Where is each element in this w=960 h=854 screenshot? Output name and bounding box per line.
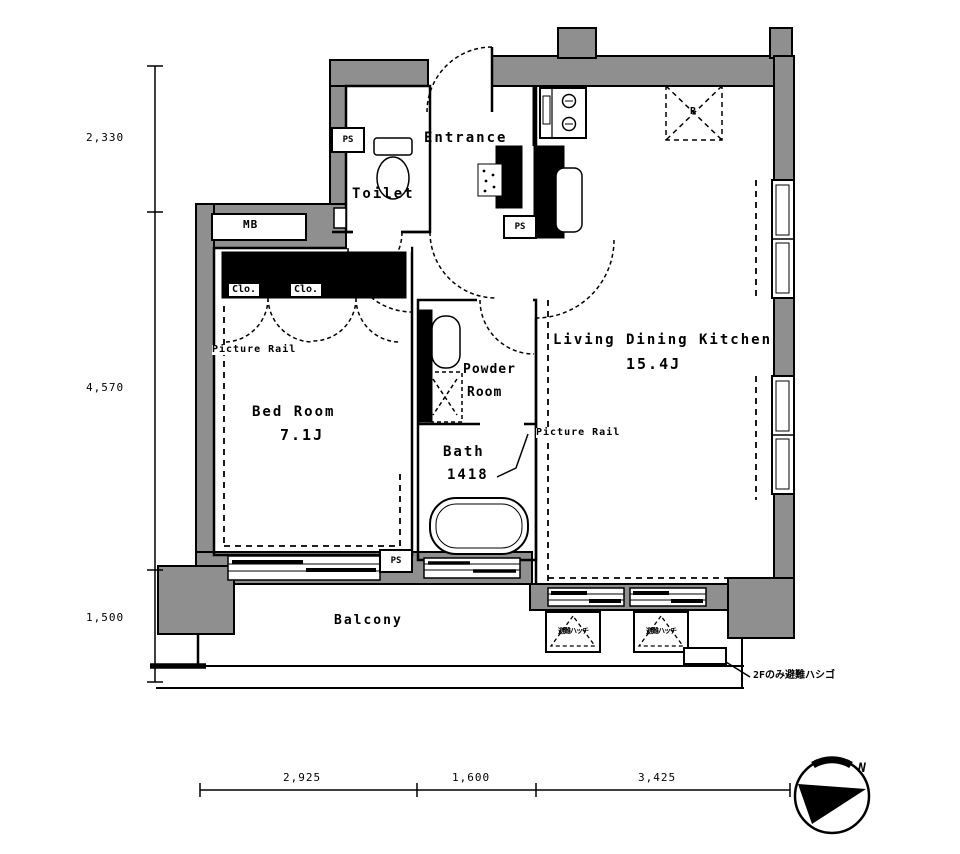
window-right-upper xyxy=(772,180,794,298)
bath-label: Bath xyxy=(443,445,485,459)
window-ldk-left xyxy=(548,588,624,606)
dim-bottom-3: 3,425 xyxy=(638,772,676,783)
entrance-label: Entrance xyxy=(424,131,507,145)
ldk-door-arc xyxy=(536,240,614,318)
stove xyxy=(540,88,586,138)
compass-north-label: N xyxy=(858,762,866,775)
dim-bottom-1: 2,925 xyxy=(283,772,321,783)
dim-left-2: 4,570 xyxy=(86,382,124,393)
balcony-left-pillar xyxy=(158,566,234,634)
powder-door-arc xyxy=(480,300,534,354)
closet-label-2: Clo. xyxy=(291,284,321,296)
picture-rail-label-ldk: Picture Rail xyxy=(536,428,620,438)
washer-space xyxy=(428,372,462,422)
wash-basin xyxy=(432,316,460,368)
meter-box xyxy=(212,214,306,240)
bedroom-size: 7.1J xyxy=(280,428,324,443)
bathtub xyxy=(430,498,528,554)
paper-holder xyxy=(334,208,346,228)
escape-hatch-label-1: 避難ハッチ xyxy=(546,627,600,636)
pipe-space-3: PS xyxy=(379,549,413,573)
dim-bottom-2: 1,600 xyxy=(452,772,490,783)
note-leader-line xyxy=(726,662,750,677)
bedroom-label: Bed Room xyxy=(252,405,335,419)
ldk-label: Living Dining Kitchen xyxy=(553,333,772,347)
vanity-counter xyxy=(418,310,432,422)
closet-door-arcs-left xyxy=(224,298,313,342)
meter-box-label: MB xyxy=(243,219,258,230)
window-bedroom xyxy=(228,556,380,580)
kitchen-sink xyxy=(556,168,582,232)
powder-room-label-1: Powder xyxy=(463,363,516,376)
powder-room-label-2: Room xyxy=(467,386,502,399)
entrance-door-arc xyxy=(427,47,492,112)
refrigerator-label: R xyxy=(690,107,696,117)
window-right-lower xyxy=(772,376,794,494)
escape-hatches xyxy=(546,612,750,677)
hall-door-arc xyxy=(430,232,496,298)
escape-ladder-note: 2Fのみ避難ハシゴ xyxy=(753,671,835,681)
closet-label-1: Clo. xyxy=(229,284,259,296)
floor-plan: Entrance Toilet Bed Room 7.1J Living Din… xyxy=(0,0,960,854)
pipe-space-2: PS xyxy=(503,215,537,239)
ladder-tag xyxy=(684,648,726,664)
picture-rail-label-bedroom: Picture Rail xyxy=(212,345,296,355)
bath-size: 1418 xyxy=(447,468,489,482)
window-ldk-right xyxy=(630,588,706,606)
ldk-size: 15.4J xyxy=(626,357,681,372)
closet-door-arcs-right xyxy=(313,298,400,342)
bath-leader-line xyxy=(497,434,528,477)
floor-plan-drawing xyxy=(0,0,960,854)
balcony-label: Balcony xyxy=(334,614,403,627)
escape-hatch-label-2: 避難ハッチ xyxy=(634,627,688,636)
dim-left-1: 2,330 xyxy=(86,132,124,143)
window-bath xyxy=(424,558,520,578)
dim-left-3: 1,500 xyxy=(86,612,124,623)
balcony-right-pillar xyxy=(728,578,794,638)
toilet-label: Toilet xyxy=(352,187,415,201)
pipe-space-1: PS xyxy=(331,127,365,153)
entrance-step xyxy=(478,164,502,196)
